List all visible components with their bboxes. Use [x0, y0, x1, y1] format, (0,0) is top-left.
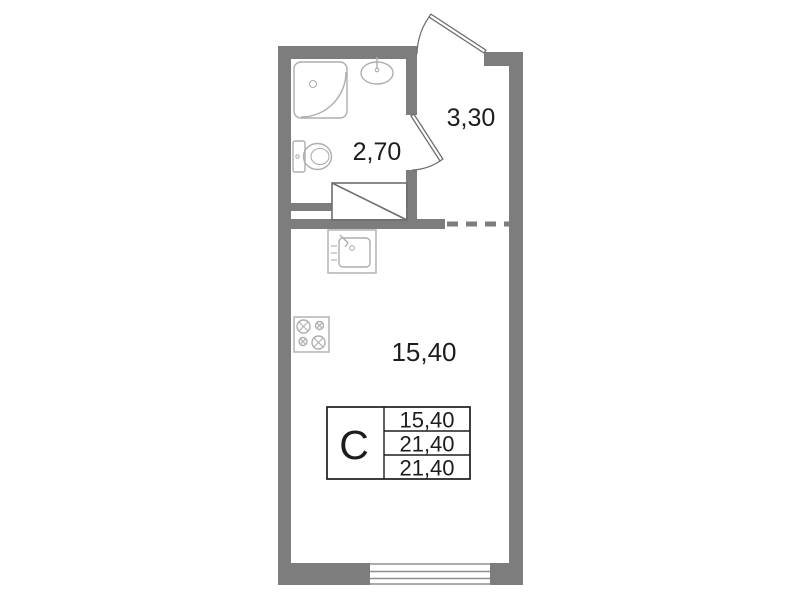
- apartment-stamp: С 15,40 21,40 21,40: [327, 407, 470, 481]
- wardrobe-icon: [332, 183, 407, 220]
- left-wall: [278, 46, 291, 585]
- window-icon: [370, 563, 490, 585]
- bathroom-area-label: 2,70: [353, 138, 402, 166]
- stamp-living-area: 15,40: [399, 408, 454, 433]
- living-area-label: 15,40: [391, 337, 456, 367]
- floor-plan-drawing: 2,70 3,30 15,40 С 15,40 21,40 21,40: [0, 0, 799, 600]
- stamp-type-label: С: [339, 422, 369, 468]
- bathroom-sink-icon: [361, 57, 393, 84]
- right-wall: [509, 52, 523, 585]
- top-wall: [278, 46, 417, 59]
- kitchen-sink-icon: [328, 230, 376, 273]
- stove-icon: [294, 317, 329, 352]
- bathroom-wall-upper: [406, 46, 417, 115]
- stamp-total-area: 21,40: [399, 432, 454, 457]
- floor-plan: 2,70 3,30 15,40 С 15,40 21,40 21,40: [0, 0, 799, 600]
- shower-icon: [294, 62, 347, 118]
- toilet-icon: [293, 141, 332, 172]
- hallway-area-label: 3,30: [447, 104, 496, 132]
- bathroom-door-icon: [411, 114, 443, 170]
- bathroom-wall-stub: [291, 203, 332, 211]
- stamp-total-area-with-balcony: 21,40: [399, 456, 454, 481]
- entry-door-icon: [417, 14, 486, 54]
